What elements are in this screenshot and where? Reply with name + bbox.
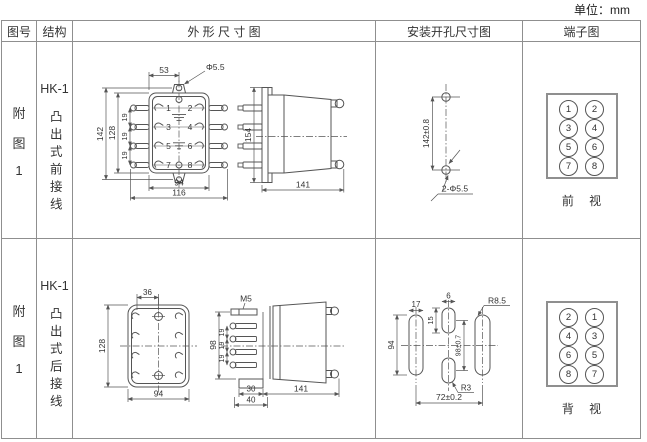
dim-screw: M5 [240, 294, 252, 304]
dim-radius-small: R3 [461, 384, 472, 393]
terminal-cell-row2: 2 1 4 3 6 5 8 7 背 视 [523, 239, 640, 438]
terminal-hook-icon [132, 313, 183, 378]
dim-mid-width: 6 [446, 292, 451, 301]
dim-mid-height: 15 [426, 316, 435, 324]
dim-side-depth: 141 [296, 180, 310, 190]
terminal-circle: 8 [585, 157, 604, 176]
terminal-circle: 2 [585, 100, 604, 119]
fig-char: 1 [15, 361, 22, 376]
dim-h-spacing: 72±0.2 [436, 392, 462, 402]
mounting-cell-row1: 142±0.8 2-Φ5.5 [376, 42, 523, 239]
rear-view-dimensions [104, 294, 189, 402]
model-label: HK-1 [40, 82, 68, 96]
terminal-circle: 7 [585, 365, 604, 384]
dim-pitch: 19 [219, 342, 226, 350]
dim-height-outer: 142 [95, 127, 105, 141]
dim-top-offset: 53 [159, 65, 169, 75]
terminal-circle: 5 [559, 138, 578, 157]
mounting-slots [401, 300, 498, 391]
front-view-terminal-numbers: 1 2 3 4 5 6 7 8 [166, 103, 193, 170]
dim-height-inner: 128 [107, 126, 117, 140]
terminal-circle: 3 [585, 327, 604, 346]
header-outline: 外 形 尺 寸 图 [73, 21, 376, 42]
fig-no-cell-row2: 附 图 1 [2, 239, 37, 438]
dim-pitch: 19 [120, 113, 129, 121]
structure-cell-row2: HK-1 凸出式后接线 [37, 239, 73, 438]
unit-label: 单位：mm [574, 1, 630, 18]
mounting-drawing-rear-wiring: 17 94 6 15 98±0.7 R8.5 R3 72±0.2 [376, 239, 522, 436]
dim-base-depth: 30 [247, 385, 256, 394]
dimension-table: 图号 结构 外 形 尺 寸 图 安装开孔尺寸图 端子图 附 图 1 HK-1 凸… [1, 20, 641, 439]
dim-radius-big: R8.5 [488, 296, 506, 306]
terminal-circle: 1 [559, 100, 578, 119]
terminal-number: 5 [166, 141, 171, 151]
dim-height: 128 [97, 339, 107, 353]
terminal-circle: 4 [585, 119, 604, 138]
terminal-number: 8 [188, 160, 193, 170]
dim-holes: 2-Φ5.5 [442, 184, 468, 194]
dim-pitch: 19 [219, 355, 226, 363]
header-mounting: 安装开孔尺寸图 [376, 21, 523, 42]
outline-drawing-front-wiring: 1 2 3 4 5 6 7 8 [73, 42, 376, 239]
terminal-number: 3 [166, 122, 171, 132]
dim-v-spacing: 98±0.7 [456, 335, 463, 356]
fig-char: 附 [12, 301, 25, 320]
fig-char: 附 [12, 103, 25, 122]
terminal-cell-row1: 1 2 3 4 5 6 7 8 前 视 [523, 42, 640, 239]
header-terminal: 端子图 [523, 21, 640, 42]
dim-side-height: 154 [243, 128, 253, 142]
view-label: 前 视 [556, 192, 607, 209]
outline-cell-row2: 36 128 94 [73, 239, 376, 438]
terminal-circle: 2 [559, 308, 578, 327]
side-view [221, 302, 345, 388]
header-fig-no: 图号 [2, 21, 37, 42]
mounting-drawing-front-wiring: 142±0.8 2-Φ5.5 [376, 42, 522, 239]
rear-view [120, 298, 197, 394]
terminal-circle: 4 [559, 327, 578, 346]
fig-char: 1 [15, 163, 22, 178]
dim-pitch: 19 [120, 132, 129, 140]
dim-base-width: 40 [247, 396, 256, 405]
dim-pitch: 19 [219, 329, 226, 337]
front-view [131, 81, 228, 189]
mounting-holes [432, 84, 460, 183]
header-structure: 结构 [37, 21, 73, 42]
structure-cell-row1: HK-1 凸出式前接线 [37, 42, 73, 239]
terminal-number: 1 [166, 103, 171, 113]
outline-drawing-rear-wiring: 36 128 94 [73, 239, 376, 436]
terminal-number: 4 [188, 122, 193, 132]
dim-side-depth: 141 [294, 384, 308, 394]
fig-char: 图 [12, 331, 25, 350]
terminal-box-rear-view: 2 1 4 3 6 5 8 7 [546, 301, 618, 387]
dim-width-inner: 94 [174, 178, 184, 188]
terminal-circle: 6 [585, 138, 604, 157]
dim-width: 94 [154, 389, 164, 399]
mounting-cell-row2: 17 94 6 15 98±0.7 R8.5 R3 72±0.2 [376, 239, 523, 438]
terminal-circle: 3 [559, 119, 578, 138]
dim-pitch: 19 [120, 151, 129, 159]
view-label: 背 视 [556, 400, 607, 417]
dim-ear-hole: Φ5.5 [206, 62, 225, 72]
terminal-number: 6 [188, 141, 193, 151]
dim-top-offset: 36 [143, 288, 152, 297]
terminal-circle: 6 [559, 346, 578, 365]
structure-desc: 凸出式后接线 [48, 307, 61, 412]
side-view-dimensions [250, 88, 344, 193]
terminal-number: 7 [166, 160, 171, 170]
terminal-number: 2 [188, 103, 193, 113]
dim-width-outer: 116 [172, 188, 186, 198]
terminal-box-front-view: 1 2 3 4 5 6 7 8 [546, 93, 618, 179]
dim-slot-width: 17 [412, 300, 421, 309]
terminal-circle: 5 [585, 346, 604, 365]
fig-char: 图 [12, 133, 25, 152]
terminal-circle: 7 [559, 157, 578, 176]
dim-hole-spacing: 142±0.8 [422, 119, 431, 148]
dim-stud-span: 98 [208, 340, 218, 350]
dim-slot-height: 94 [387, 340, 396, 349]
model-label: HK-1 [40, 279, 68, 293]
side-view-dimensions [215, 303, 339, 408]
outline-cell-row1: 1 2 3 4 5 6 7 8 [73, 42, 376, 239]
fig-no-cell-row1: 附 图 1 [2, 42, 37, 239]
terminal-circle: 1 [585, 308, 604, 327]
datasheet-page: 单位：mm 图号 结构 外 形 尺 寸 图 安装开孔尺寸图 端子图 附 图 1 … [0, 0, 647, 442]
structure-desc: 凸出式前接线 [48, 110, 61, 215]
terminal-circle: 8 [559, 365, 578, 384]
